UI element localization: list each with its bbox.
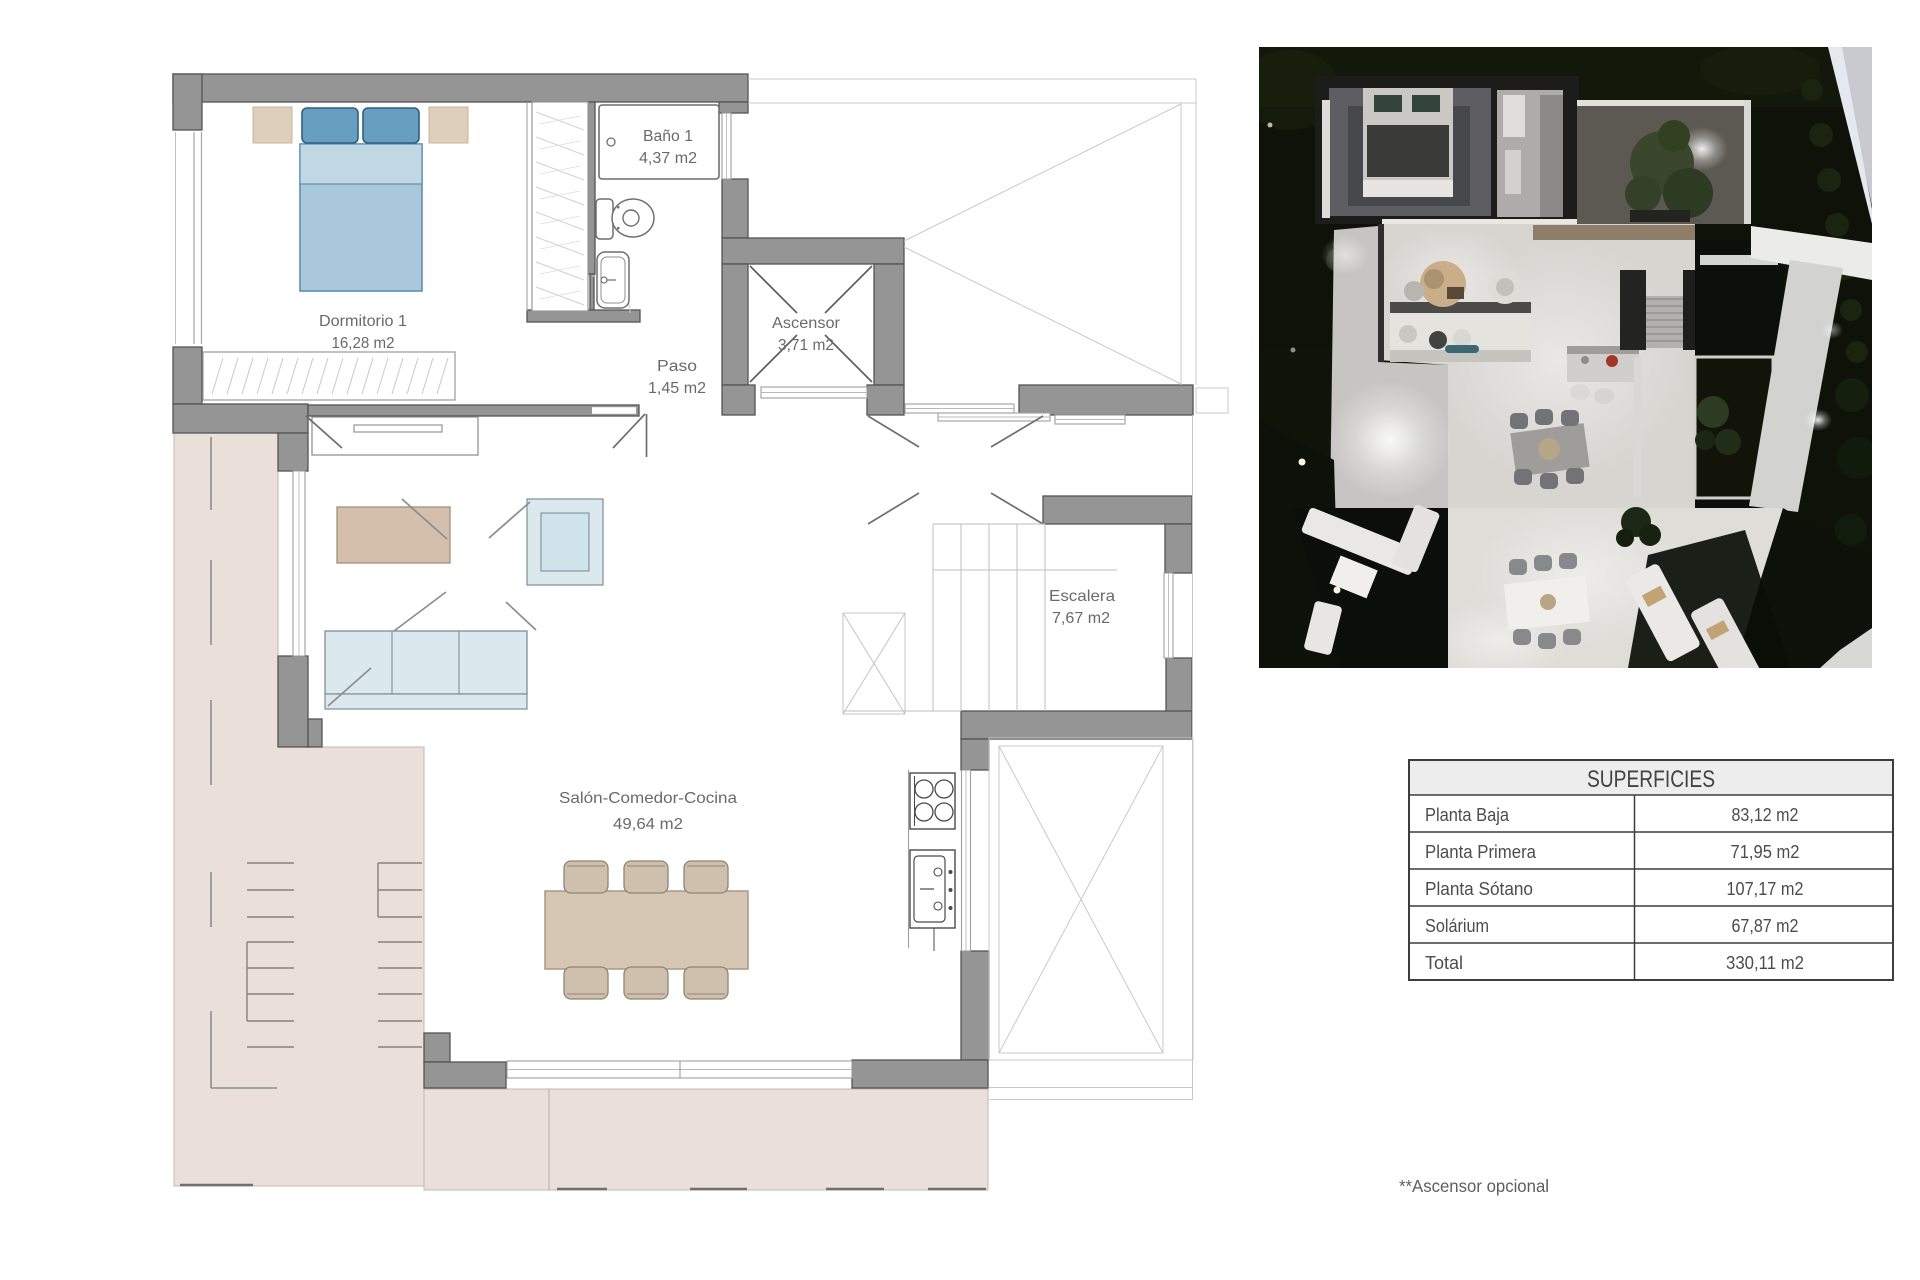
svg-text:Dormitorio 1: Dormitorio 1 (319, 313, 407, 330)
svg-text:Total: Total (1425, 952, 1463, 973)
svg-text:7,67 m2: 7,67 m2 (1052, 610, 1110, 627)
svg-text:Solárium: Solárium (1425, 915, 1489, 936)
svg-text:330,11 m2: 330,11 m2 (1726, 952, 1804, 973)
svg-text:Escalera: Escalera (1049, 588, 1115, 605)
svg-text:SUPERFICIES: SUPERFICIES (1587, 766, 1715, 793)
svg-text:107,17 m2: 107,17 m2 (1727, 878, 1804, 899)
svg-text:Salón-Comedor-Cocina: Salón-Comedor-Cocina (559, 790, 737, 807)
svg-text:3,71 m2: 3,71 m2 (778, 337, 834, 354)
svg-text:49,64 m2: 49,64 m2 (613, 816, 683, 833)
svg-text:Paso: Paso (657, 358, 697, 375)
svg-text:71,95 m2: 71,95 m2 (1731, 841, 1800, 862)
svg-text:1,45 m2: 1,45 m2 (648, 380, 706, 397)
svg-text:Planta Baja: Planta Baja (1425, 804, 1510, 825)
svg-text:Planta Sótano: Planta Sótano (1425, 878, 1533, 899)
svg-text:**Ascensor opcional: **Ascensor opcional (1399, 1176, 1549, 1196)
svg-text:Ascensor: Ascensor (772, 315, 841, 332)
svg-text:67,87 m2: 67,87 m2 (1732, 915, 1799, 936)
svg-text:16,28 m2: 16,28 m2 (332, 335, 395, 352)
svg-text:83,12 m2: 83,12 m2 (1732, 804, 1799, 825)
svg-text:Planta Primera: Planta Primera (1425, 841, 1537, 862)
svg-text:4,37 m2: 4,37 m2 (639, 150, 697, 167)
svg-text:Baño 1: Baño 1 (643, 128, 693, 145)
